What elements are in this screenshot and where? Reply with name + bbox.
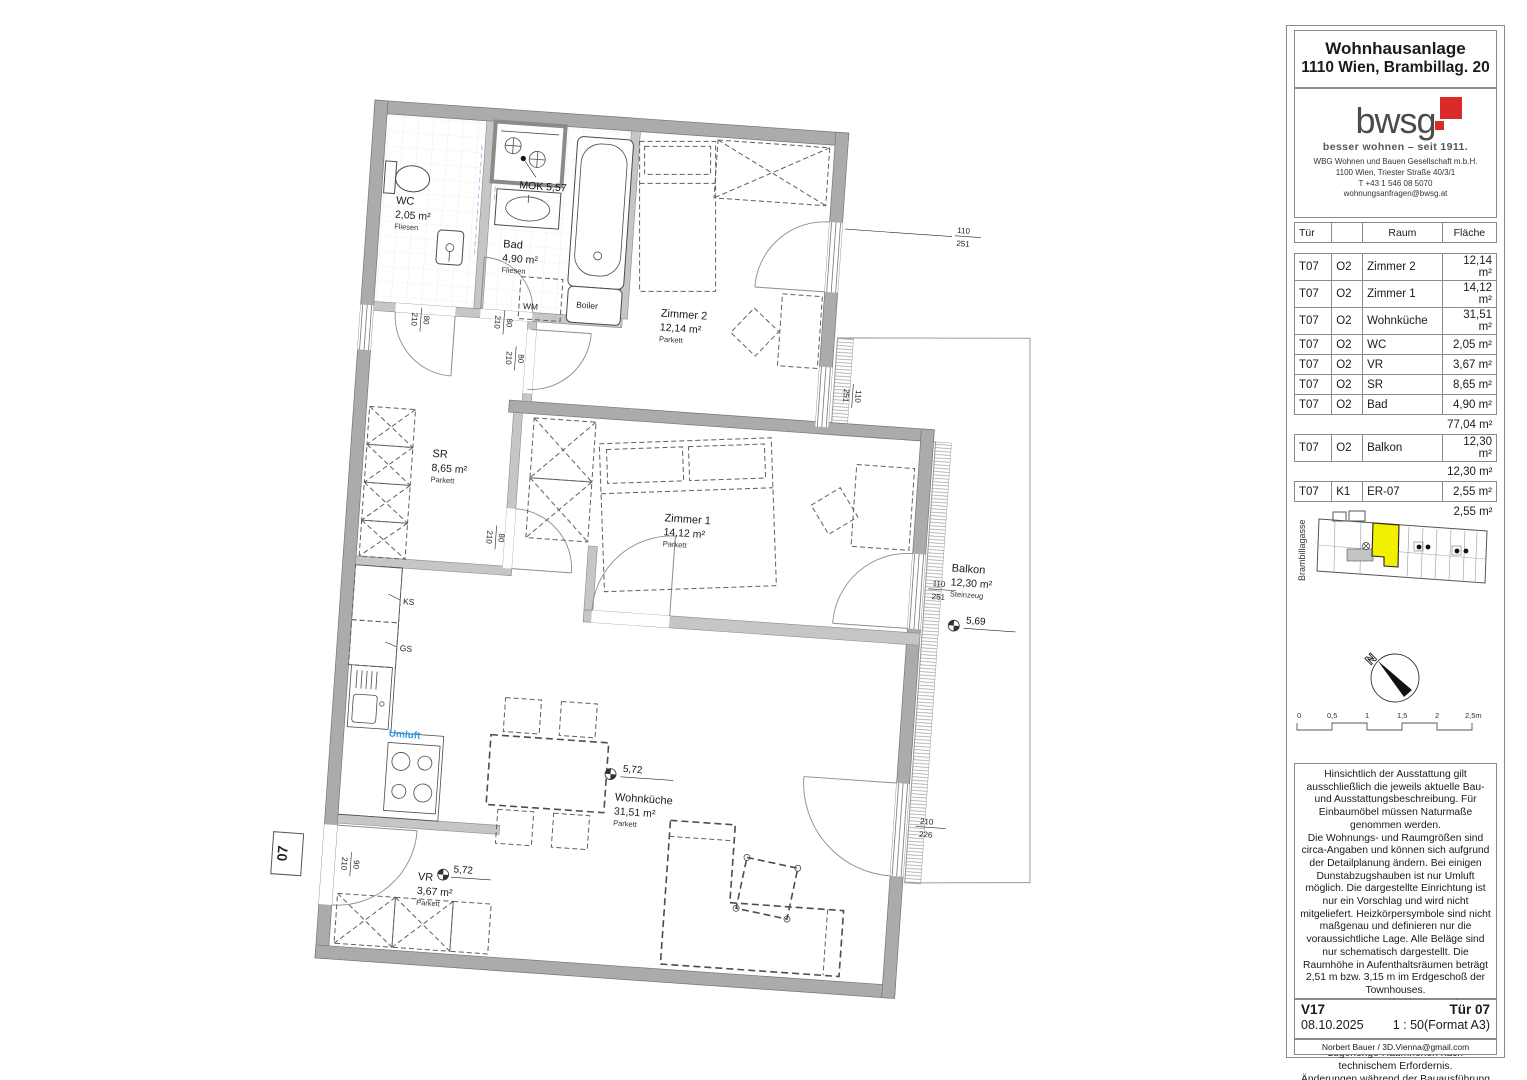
zimmer2-furniture [625,135,833,369]
scale-label: 1 : 50(Format A3) [1393,1018,1490,1032]
svg-text:GS: GS [399,643,412,654]
logo-tagline: besser wohnen – seit 1911. [1295,141,1496,153]
umluft-label: Umluft [388,729,421,742]
zimmer1-furniture [589,426,916,613]
bwsg-wordmark: bwsg [1355,100,1435,141]
svg-text:210: 210 [492,315,502,329]
washbasin-icon [495,189,561,229]
svg-text:Parkett: Parkett [659,334,684,345]
svg-text:5,72: 5,72 [623,764,644,776]
table-subtotal-row: 77,04 m² [1295,415,1497,435]
svg-text:210: 210 [339,857,349,871]
table-row: T07O2SR8,65 m² [1295,375,1497,395]
project-address: 1110 Wien, Brambillag. 20 [1295,59,1496,77]
svg-text:80: 80 [421,315,431,325]
svg-text:Parkett: Parkett [662,539,687,550]
room-label-zimmer1: Zimmer 1 14,12 m² Parkett [662,512,711,551]
svg-text:Fliesen: Fliesen [394,222,419,233]
svg-text:0,5: 0,5 [1327,711,1337,720]
site-highlight-unit [1372,523,1399,567]
svg-text:Boiler: Boiler [576,300,599,312]
svg-text:0: 0 [1297,711,1301,720]
svg-text:251: 251 [931,592,945,602]
footer-meta: V17 Tür 07 08.10.2025 1 : 50(Format A3) [1294,999,1497,1039]
cooktop-icon [383,742,440,813]
kitchen: KS GS Umluft [338,565,455,821]
bwsg-logo: bwsg [1355,105,1435,138]
sheet-title: Wohnhausanlage 1110 Wien, Brambillag. 20 [1294,30,1497,88]
entry-door-tag: 07 [271,832,304,876]
svg-text:Parkett: Parkett [613,818,638,829]
svg-text:1,5: 1,5 [1397,711,1407,720]
author-label: Norbert Bauer / 3D.Vienna@gmail.com [1322,1042,1469,1052]
svg-text:2,05 m²: 2,05 m² [395,209,432,223]
vestibule-wardrobes [526,418,596,542]
svg-text:Bad: Bad [503,238,523,251]
table-row: T07O2Bad4,90 m² [1295,395,1497,415]
svg-text:8,65 m²: 8,65 m² [431,462,468,476]
title-block-panel: Wohnhausanlage 1110 Wien, Brambillag. 20… [1286,25,1505,1058]
svg-text:Parkett: Parkett [430,475,455,486]
table-row: T07O2Zimmer 114,12 m² [1295,281,1497,308]
floor-plan: Boiler WM MOK 5,57 WC 2,05 m² Fliesen Ba… [0,0,1285,1080]
svg-text:80: 80 [496,533,506,543]
room-label-zimmer2: Zimmer 2 12,14 m² Parkett [659,307,708,346]
shaft [492,121,566,186]
svg-text:251: 251 [956,239,970,249]
door-label: Tür 07 [1449,1002,1490,1017]
svg-text:80: 80 [516,354,526,364]
svg-text:WC: WC [396,195,415,208]
project-title: Wohnhausanlage [1295,38,1496,59]
svg-text:Zimmer 1: Zimmer 1 [664,512,711,527]
svg-text:226: 226 [919,830,933,840]
svg-text:4,90 m²: 4,90 m² [502,252,539,266]
svg-text:KS: KS [403,596,415,607]
company-box: bwsg besser wohnen – seit 1911. WBG Wohn… [1294,88,1497,218]
svg-text:3,67 m²: 3,67 m² [417,885,454,899]
room-label-wohnkueche: 5,72 Wohnküche 31,51 m² Parkett [601,763,675,832]
north-label: N [1362,650,1379,667]
balcony-slab [800,325,1068,892]
svg-text:1: 1 [1365,711,1369,720]
svg-text:VR: VR [417,871,433,884]
svg-text:2,5m: 2,5m [1465,711,1482,720]
svg-text:110: 110 [932,579,946,589]
svg-text:Parkett: Parkett [416,898,441,909]
table-row: T07O2VR3,67 m² [1295,355,1497,375]
sr-wardrobes [359,406,415,559]
room-label-vr: VR 5,72 3,67 m² Parkett [416,862,492,912]
logo-square-big-icon [1440,97,1462,119]
date-label: 08.10.2025 [1301,1018,1364,1032]
svg-text:90: 90 [351,860,361,870]
table-row: T07O2Wohnküche31,51 m² [1295,308,1497,335]
bathtub-icon [568,136,634,290]
company-address: WBG Wohnen und Bauen Gesellschaft m.b.H.… [1295,157,1496,200]
svg-text:2: 2 [1435,711,1439,720]
svg-text:07: 07 [274,845,291,862]
version-label: V17 [1301,1002,1325,1017]
site-symbol-icon [1363,543,1370,550]
dining-set [483,697,611,851]
wm-label: WM [523,301,539,312]
svg-text:Zimmer 2: Zimmer 2 [660,307,707,322]
table-row: T07O2Balkon12,30 m² [1295,435,1497,462]
drawing-sheet: Boiler WM MOK 5,57 WC 2,05 m² Fliesen Ba… [0,0,1527,1080]
scale-bar: 0 0,5 1 1,5 2 2,5m [1295,709,1495,737]
svg-text:110: 110 [853,390,863,404]
svg-text:5,72: 5,72 [453,864,474,876]
svg-text:210: 210 [484,530,494,544]
svg-text:80: 80 [504,318,514,328]
svg-text:110: 110 [957,226,971,236]
wc-sink-icon [436,230,464,266]
table-row: T07O2WC2,05 m² [1295,335,1497,355]
table-subtotal-row: 12,30 m² [1295,462,1497,482]
logo-square-small-icon [1435,121,1444,130]
svg-text:Fliesen: Fliesen [501,265,526,276]
author-box: Norbert Bauer / 3D.Vienna@gmail.com [1294,1039,1497,1055]
kitchen-sink-icon [347,665,392,730]
svg-text:210: 210 [409,312,419,326]
table-row: T07O2Zimmer 212,14 m² [1295,254,1497,281]
living-set [660,820,849,976]
street-label: Brambillagasse [1297,519,1307,581]
svg-text:210: 210 [920,817,934,827]
site-gray-unit [1347,549,1373,561]
site-plan: Brambillagasse [1291,481,1501,616]
svg-text:5,69: 5,69 [966,616,987,628]
svg-text:210: 210 [504,351,514,365]
room-label-sr: SR 8,65 m² Parkett [430,448,469,486]
table-header-row: Tür Raum Fläche [1295,223,1497,243]
room-table: Tür Raum Fläche T07O2Zimmer 212,14 m² T0… [1294,222,1497,521]
boiler-icon: Boiler [566,286,622,326]
disclaimer: Hinsichtlich der Ausstattung gilt aussch… [1294,763,1497,999]
svg-text:SR: SR [432,448,448,461]
svg-text:Balkon: Balkon [951,562,985,576]
svg-text:251: 251 [841,389,851,403]
